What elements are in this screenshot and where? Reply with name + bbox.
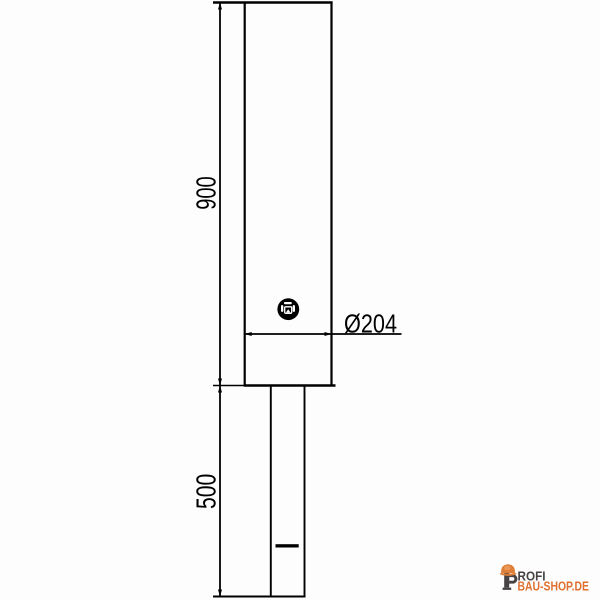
svg-text:BAU-SHOP.DE: BAU-SHOP.DE bbox=[518, 580, 590, 594]
svg-text:500: 500 bbox=[192, 474, 222, 509]
svg-text:Ø204: Ø204 bbox=[344, 311, 397, 339]
svg-text:900: 900 bbox=[191, 176, 222, 209]
